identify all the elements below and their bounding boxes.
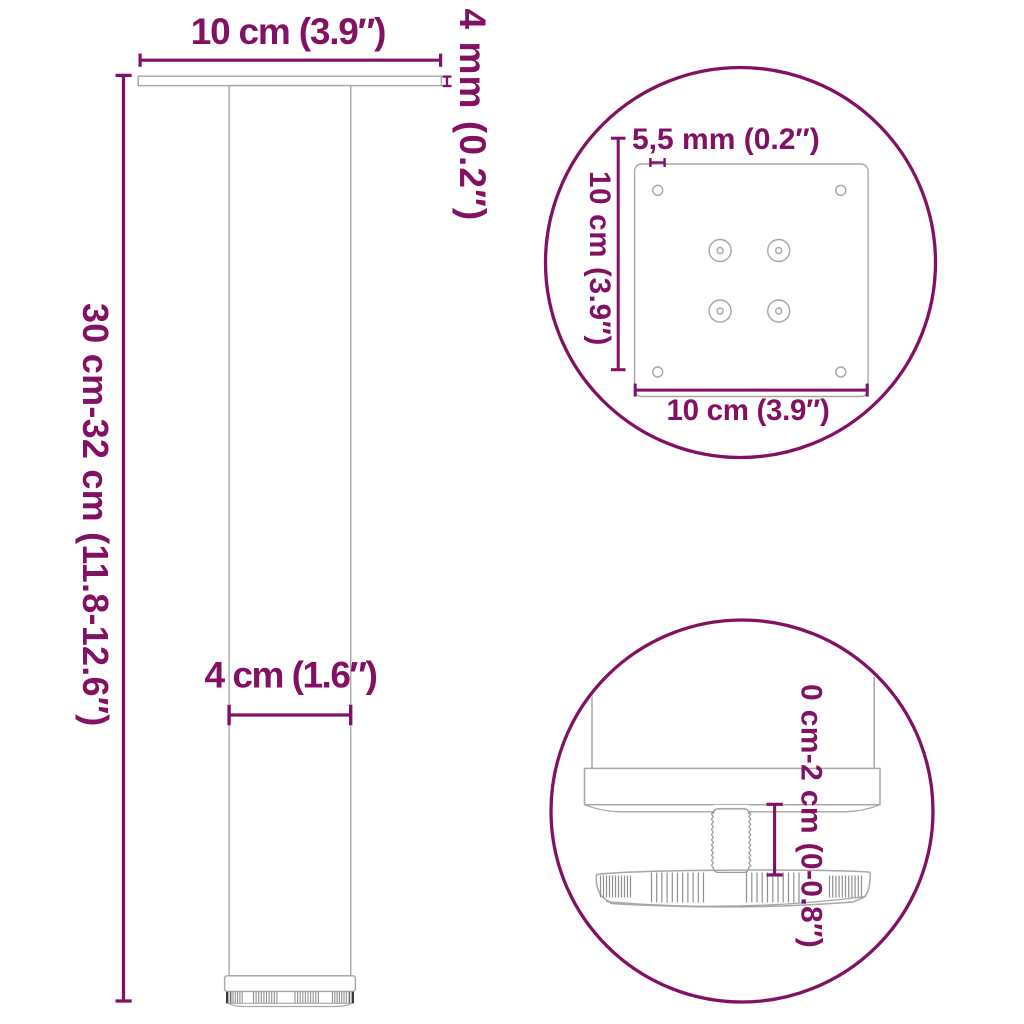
- svg-text:10 cm (3.9″): 10 cm (3.9″): [583, 171, 616, 346]
- svg-text:5,5 mm (0.2″): 5,5 mm (0.2″): [632, 123, 820, 156]
- svg-text:30 cm-32 cm (11.8-12.6″): 30 cm-32 cm (11.8-12.6″): [75, 303, 116, 727]
- svg-text:4 mm (0.2″): 4 mm (0.2″): [452, 9, 493, 222]
- svg-text:10 cm (3.9″): 10 cm (3.9″): [191, 11, 386, 52]
- svg-text:10 cm (3.9″): 10 cm (3.9″): [666, 394, 829, 427]
- svg-text:4 cm (1.6″): 4 cm (1.6″): [205, 655, 377, 696]
- svg-text:0 cm-2 cm (0-0.8″): 0 cm-2 cm (0-0.8″): [795, 684, 828, 948]
